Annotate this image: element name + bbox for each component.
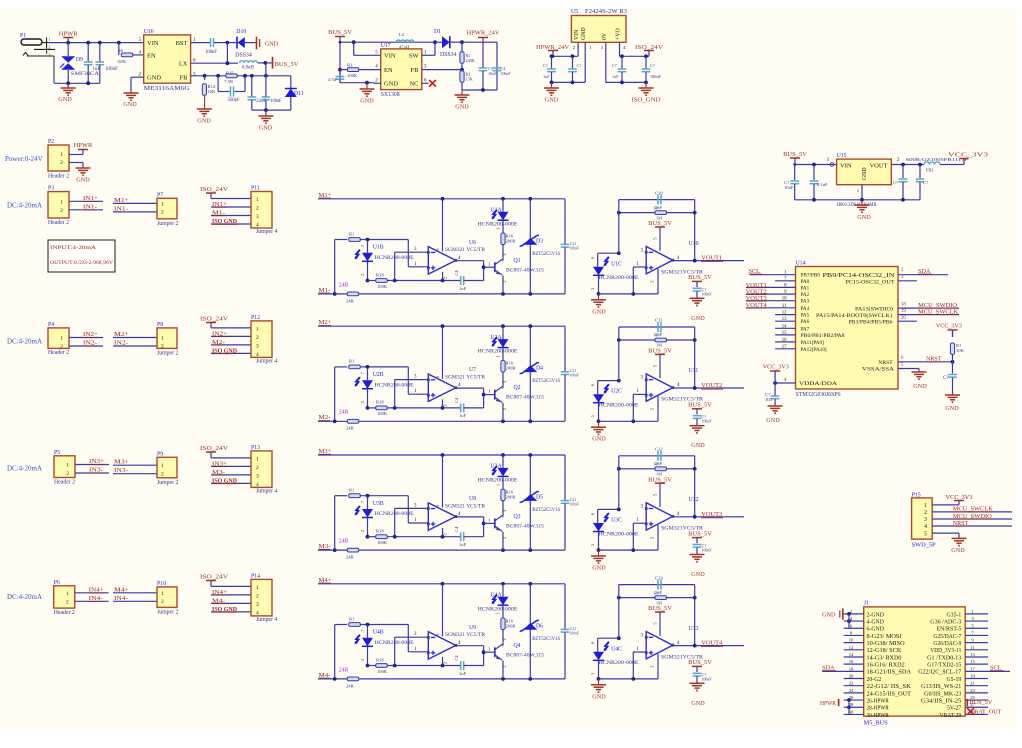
svg-text:VSSA/SSA: VSSA/SSA: [862, 367, 894, 373]
svg-text:BC807-40W,115: BC807-40W,115: [506, 652, 544, 658]
svg-text:1: 1: [256, 585, 259, 591]
svg-text:2: 2: [60, 208, 63, 214]
svg-text:100nF: 100nF: [105, 66, 118, 72]
svg-text:D3: D3: [536, 238, 543, 244]
svg-text:10K: 10K: [956, 348, 965, 353]
svg-text:2: 2: [256, 335, 259, 341]
svg-text:3: 3: [256, 473, 259, 479]
svg-text:GND: GND: [265, 41, 279, 48]
svg-text:Header 2: Header 2: [48, 220, 69, 226]
svg-text:24R: 24R: [339, 539, 349, 545]
svg-text:C?: C?: [577, 63, 582, 68]
svg-text:U3B: U3B: [373, 501, 384, 507]
svg-text:R?: R?: [654, 205, 659, 210]
svg-text:16: 16: [849, 659, 854, 664]
svg-text:11: 11: [970, 645, 975, 650]
svg-text:BUS_5V: BUS_5V: [688, 659, 712, 666]
svg-text:GND: GND: [592, 308, 606, 315]
svg-text:IN3-: IN3-: [89, 468, 103, 474]
svg-text:IN2+: IN2+: [83, 332, 98, 338]
svg-text:15K: 15K: [466, 77, 473, 82]
svg-text:C?: C?: [543, 63, 548, 68]
svg-text:C?: C?: [943, 376, 949, 381]
svg-text:PB3/PB4/PB5/PB6: PB3/PB4/PB5/PB6: [849, 320, 893, 326]
svg-text:IN4-: IN4-: [114, 596, 128, 602]
svg-text:20: 20: [849, 674, 854, 679]
svg-text:INPUT:4-20mA: INPUT:4-20mA: [50, 245, 96, 251]
svg-text:GND: GND: [691, 700, 705, 707]
svg-text:1: 1: [496, 613, 501, 615]
svg-text:VBAT-29: VBAT-29: [940, 713, 962, 719]
svg-text:U7: U7: [469, 367, 476, 373]
svg-text:100nF: 100nF: [570, 374, 579, 378]
svg-text:SW: SW: [409, 53, 420, 60]
svg-text:BUS_5V: BUS_5V: [688, 530, 712, 537]
svg-text:ISO_GND: ISO_GND: [632, 97, 662, 104]
svg-text:7: 7: [360, 630, 365, 632]
svg-text:Jumper 2: Jumper 2: [157, 350, 179, 356]
svg-text:100nF: 100nF: [270, 99, 281, 104]
svg-text:U9: U9: [469, 625, 476, 631]
svg-text:2: 2: [256, 206, 259, 212]
svg-text:U10: U10: [689, 241, 699, 247]
svg-text:C21: C21: [570, 369, 576, 373]
svg-text:U2A: U2A: [490, 335, 502, 341]
svg-text:1: 1: [256, 456, 259, 462]
svg-text:GND: GND: [123, 101, 137, 108]
svg-text:R18: R18: [376, 400, 384, 405]
svg-text:PC15-OSC32_OUT: PC15-OSC32_OUT: [846, 280, 896, 286]
svg-text:2: 2: [256, 465, 259, 471]
svg-text:2: 2: [66, 599, 69, 605]
svg-text:PA4: PA4: [801, 306, 810, 312]
svg-text:U11: U11: [689, 368, 699, 374]
svg-text:1: 1: [66, 463, 69, 469]
svg-text:1uF: 1uF: [459, 286, 467, 291]
svg-text:17: 17: [970, 666, 975, 671]
svg-text:U17: U17: [381, 43, 391, 49]
svg-text:Header 2: Header 2: [54, 610, 75, 616]
svg-text:U6: U6: [469, 240, 476, 246]
svg-text:D5: D5: [536, 495, 543, 501]
svg-text:1: 1: [496, 355, 501, 357]
svg-text:IN2-: IN2-: [114, 341, 128, 347]
svg-text:C4: C4: [454, 270, 459, 276]
svg-text:24R: 24R: [339, 667, 349, 673]
svg-text:24: 24: [849, 688, 854, 693]
svg-text:BUS_5V: BUS_5V: [648, 476, 672, 483]
svg-text:19: 19: [970, 674, 975, 679]
svg-text:23: 23: [970, 688, 975, 693]
svg-text:C4: C4: [454, 397, 459, 403]
svg-text:100K: 100K: [117, 59, 126, 64]
svg-text:C?: C?: [923, 180, 928, 185]
svg-text:VDDA/DDA: VDDA/DDA: [799, 381, 837, 387]
svg-text:100nF: 100nF: [501, 71, 512, 76]
svg-text:5: 5: [590, 673, 595, 675]
svg-text:OUTPUT:0.593-2.968,96V: OUTPUT:0.593-2.968,96V: [50, 260, 113, 266]
svg-text:C11: C11: [655, 318, 663, 323]
svg-text:D10: D10: [236, 29, 246, 35]
svg-text:C?: C?: [893, 180, 898, 185]
svg-text:16-G16/ RXD2: 16-G16/ RXD2: [867, 663, 905, 669]
svg-text:24R: 24R: [339, 282, 349, 288]
svg-text:U15: U15: [837, 153, 847, 159]
svg-text:VOUT2: VOUT2: [701, 382, 722, 389]
svg-text:IN2-: IN2-: [83, 341, 97, 347]
svg-text:24R: 24R: [346, 555, 355, 560]
svg-text:DC:4-20mA: DC:4-20mA: [7, 465, 42, 473]
svg-text:24R: 24R: [346, 426, 355, 431]
svg-text:ISO_24V: ISO_24V: [200, 445, 228, 452]
svg-text:240K: 240K: [466, 58, 475, 63]
svg-text:GND: GND: [766, 417, 780, 424]
svg-text:18-G21/IIS_SDA: 18-G21/IIS_SDA: [867, 670, 912, 676]
svg-text:13: 13: [970, 652, 975, 657]
svg-text:U4B: U4B: [373, 630, 384, 636]
svg-text:VIN: VIN: [840, 163, 852, 170]
svg-text:U14: U14: [796, 261, 806, 267]
svg-text:Jumper 2: Jumper 2: [157, 480, 179, 486]
svg-text:Header 2: Header 2: [54, 479, 75, 485]
svg-text:U12: U12: [689, 497, 699, 503]
svg-text:2: 2: [60, 344, 63, 350]
svg-text:1: 1: [161, 591, 164, 597]
svg-text:18: 18: [849, 666, 854, 671]
svg-text:GND: GND: [384, 81, 398, 88]
svg-text:1: 1: [66, 591, 69, 597]
svg-text:C13: C13: [655, 575, 663, 580]
svg-text:30-HPWR: 30-HPWR: [867, 713, 889, 719]
svg-text:100nF: 100nF: [570, 503, 579, 507]
svg-text:G17/TXD2-15: G17/TXD2-15: [927, 663, 961, 669]
svg-text:PA3: PA3: [801, 299, 810, 305]
svg-text:P12: P12: [251, 315, 260, 321]
svg-text:100nF: 100nF: [702, 676, 713, 681]
svg-text:10uF: 10uF: [784, 185, 794, 190]
svg-text:100K: 100K: [377, 669, 388, 674]
svg-text:3: 3: [49, 54, 51, 58]
svg-text:24R: 24R: [346, 683, 355, 688]
svg-text:F2424S-2W R3: F2424S-2W R3: [585, 9, 627, 15]
svg-text:0V: 0V: [602, 32, 608, 40]
svg-text:GND: GND: [862, 167, 868, 180]
svg-text:ISO_24V: ISO_24V: [200, 186, 228, 193]
svg-text:1: 1: [924, 503, 927, 509]
svg-text:100nF: 100nF: [702, 419, 713, 424]
svg-text:GND: GND: [58, 96, 72, 103]
svg-text:SGM321 YC5/TR: SGM321 YC5/TR: [445, 632, 486, 638]
svg-text:M5_BUS: M5_BUS: [864, 720, 889, 727]
svg-text:R18: R18: [376, 272, 384, 277]
svg-text:2: 2: [360, 530, 365, 532]
svg-text:HPWR_24V: HPWR_24V: [467, 30, 500, 37]
svg-text:Jumper 4: Jumper 4: [256, 488, 278, 494]
svg-text:6: 6: [590, 384, 595, 386]
svg-text:BAT_OUT: BAT_OUT: [974, 708, 1001, 715]
svg-text:Header 2: Header 2: [48, 350, 69, 356]
svg-text:2: 2: [360, 274, 365, 276]
svg-text:P8: P8: [157, 322, 163, 328]
svg-text:PB0/PB1/PB2/PA8: PB0/PB1/PB2/PA8: [801, 333, 845, 339]
svg-text:2: 2: [161, 344, 164, 350]
svg-text:U1B: U1B: [373, 245, 384, 251]
svg-text:Power:0-24V: Power:0-24V: [5, 155, 43, 163]
svg-text:G25/DAC-7: G25/DAC-7: [933, 634, 961, 640]
svg-text:C?: C?: [650, 63, 655, 68]
svg-text:100K: 100K: [347, 73, 358, 78]
svg-text:G5-19: G5-19: [946, 677, 961, 683]
svg-text:VIN: VIN: [574, 29, 580, 40]
svg-text:VCC_3V3: VCC_3V3: [948, 152, 988, 159]
svg-text:100nF: 100nF: [650, 74, 662, 79]
svg-text:ISO_24V: ISO_24V: [200, 574, 228, 581]
svg-text:7: 7: [360, 245, 365, 247]
svg-text:STM32G030J6SP6: STM32G030J6SP6: [796, 392, 841, 398]
svg-text:GND: GND: [857, 214, 871, 221]
svg-text:HCNR200-000E: HCNR200-000E: [478, 349, 518, 355]
svg-text:LX: LX: [179, 61, 188, 68]
svg-text:560pF: 560pF: [228, 98, 240, 103]
svg-text:R18: R18: [376, 529, 384, 534]
svg-text:GND: GND: [592, 693, 606, 700]
svg-text:C21: C21: [570, 627, 576, 631]
svg-text:10K: 10K: [208, 89, 217, 94]
svg-text:1: 1: [496, 228, 501, 230]
svg-text:2: 2: [60, 160, 63, 166]
svg-text:200R: 200R: [506, 623, 517, 628]
svg-text:200R: 200R: [506, 366, 517, 371]
svg-text:M2+: M2+: [114, 332, 129, 338]
svg-text:P10: P10: [157, 581, 166, 587]
svg-text:1: 1: [60, 199, 63, 205]
svg-text:12: 12: [849, 645, 854, 650]
svg-text:IN3-: IN3-: [114, 468, 128, 474]
svg-text:4.7uF: 4.7uF: [328, 77, 338, 82]
svg-text:HPWR: HPWR: [820, 700, 837, 707]
svg-text:U13: U13: [689, 626, 699, 632]
svg-text:100K: 100K: [377, 411, 388, 416]
svg-text:SGM321 YC5/TR: SGM321 YC5/TR: [445, 375, 486, 381]
svg-text:HCNR200-000E: HCNR200-000E: [599, 275, 639, 281]
svg-text:U3A: U3A: [490, 464, 502, 470]
svg-text:VOUT1: VOUT1: [701, 255, 722, 262]
svg-text:6: 6: [590, 642, 595, 644]
svg-text:IN1-: IN1-: [83, 204, 97, 210]
svg-text:R18: R18: [376, 657, 384, 662]
svg-text:M3+: M3+: [114, 460, 129, 466]
svg-text:3: 3: [256, 602, 259, 608]
svg-text:Jumper 2: Jumper 2: [157, 221, 179, 227]
svg-text:PA5: PA5: [801, 313, 810, 319]
svg-text:PA6: PA6: [801, 319, 810, 325]
svg-text:HPWR: HPWR: [74, 142, 93, 149]
svg-text:FB1: FB1: [926, 168, 935, 173]
svg-text:104: 104: [765, 397, 773, 402]
svg-text:1: 1: [60, 152, 63, 158]
svg-text:5: 5: [590, 415, 595, 417]
svg-text:24R: 24R: [346, 298, 355, 303]
svg-text:100K: 100K: [377, 284, 388, 289]
svg-text:VOUT3: VOUT3: [701, 511, 722, 518]
svg-text:R1: R1: [349, 231, 355, 236]
svg-text:20: 20: [901, 316, 906, 321]
svg-text:4: 4: [256, 223, 259, 229]
svg-text:VOUT4: VOUT4: [701, 640, 723, 647]
svg-text:6: 6: [590, 257, 595, 259]
svg-text:GND: GND: [581, 27, 587, 40]
svg-text:2: 2: [360, 659, 365, 661]
svg-text:14: 14: [849, 652, 854, 657]
svg-text:100nF: 100nF: [702, 291, 713, 296]
svg-text:P6: P6: [54, 580, 60, 586]
svg-text:P15: P15: [912, 493, 921, 499]
svg-text:BUS_5V: BUS_5V: [648, 220, 672, 227]
svg-text:HCNR200-000E: HCNR200-000E: [599, 531, 639, 537]
svg-text:100nF: 100nF: [702, 548, 713, 553]
svg-text:VIN: VIN: [147, 40, 159, 47]
svg-text:Header 2: Header 2: [48, 174, 69, 180]
svg-text:1: 1: [161, 336, 164, 342]
svg-text:PB9/PC14-OSC32_IN: PB9/PC14-OSC32_IN: [823, 273, 896, 279]
svg-text:BZT52C5V1S: BZT52C5V1S: [532, 378, 560, 384]
svg-text:GND: GND: [592, 436, 606, 443]
svg-text:HCNR200-000E: HCNR200-000E: [478, 606, 518, 612]
svg-text:P14: P14: [251, 573, 260, 579]
svg-text:SGM321 YC5/TR: SGM321 YC5/TR: [445, 503, 486, 509]
svg-text:7: 7: [360, 372, 365, 374]
svg-text:G26/DAC-9: G26/DAC-9: [933, 641, 961, 647]
svg-text:GND: GND: [951, 547, 965, 554]
svg-text:3: 3: [256, 214, 259, 220]
svg-text:G22/I2C_SCL-17: G22/I2C_SCL-17: [918, 670, 961, 676]
svg-text:BUS_5V: BUS_5V: [783, 151, 807, 158]
svg-text:G0/IIS_MK-23: G0/IIS_MK-23: [924, 691, 961, 697]
svg-text:BUS_5V: BUS_5V: [275, 61, 299, 68]
svg-text:G1 /TXD0-13: G1 /TXD0-13: [927, 655, 961, 661]
svg-text:P7: P7: [157, 192, 163, 198]
svg-text:BZT52C5V1S: BZT52C5V1S: [532, 251, 560, 257]
svg-text:12-G18/ SCK: 12-G18/ SCK: [867, 648, 903, 654]
svg-text:M1+: M1+: [114, 198, 129, 204]
svg-text:P13: P13: [251, 445, 260, 451]
svg-text:BC807-40W,115: BC807-40W,115: [506, 267, 544, 273]
svg-text:C?: C?: [612, 63, 617, 68]
svg-text:4: 4: [924, 524, 927, 530]
svg-text:C10: C10: [655, 190, 663, 195]
svg-text:L2: L2: [399, 32, 405, 37]
svg-text:PA1: PA1: [801, 285, 810, 291]
svg-text:G35-1: G35-1: [946, 612, 961, 618]
svg-text:200R: 200R: [506, 495, 517, 500]
svg-text:ISO_24V: ISO_24V: [200, 316, 228, 323]
svg-text:D4: D4: [536, 366, 543, 372]
svg-text:Jumper 4: Jumper 4: [256, 229, 278, 235]
svg-text:GND: GND: [197, 118, 211, 125]
svg-text:EN: EN: [384, 67, 393, 74]
svg-text:PA2: PA2: [801, 292, 810, 298]
svg-text:SWD_5P: SWD_5P: [912, 543, 937, 549]
svg-text:2: 2: [360, 401, 365, 403]
svg-text:NRST: NRST: [878, 360, 893, 366]
svg-text:BUS_5V: BUS_5V: [648, 605, 672, 612]
svg-text:18: 18: [901, 303, 906, 308]
svg-text:Jumper 4: Jumper 4: [256, 358, 278, 364]
svg-text:HPWR: HPWR: [59, 31, 78, 38]
svg-text:HCNR200-000E: HCNR200-000E: [478, 221, 518, 227]
svg-text:R15: R15: [226, 71, 234, 76]
svg-text:PA13(SWDIO): PA13(SWDIO): [855, 306, 893, 313]
svg-text:R1: R1: [349, 359, 355, 364]
svg-text:ME3116AM6G: ME3116AM6G: [144, 86, 190, 92]
svg-text:GND: GND: [691, 442, 705, 449]
svg-text:U2C: U2C: [611, 389, 622, 395]
svg-text:14-G3/ RXD0: 14-G3/ RXD0: [867, 655, 902, 661]
svg-text:200R: 200R: [506, 238, 517, 243]
svg-text:PA15/PA14-BOOT0(SWCLK): PA15/PA14-BOOT0(SWCLK): [816, 312, 892, 319]
svg-text:BUS_5V: BUS_5V: [970, 699, 993, 706]
svg-text:22: 22: [849, 681, 854, 686]
svg-text:P4: P4: [48, 322, 54, 328]
svg-text:J1: J1: [864, 600, 869, 606]
svg-text:10: 10: [849, 638, 854, 643]
svg-text:2: 2: [49, 46, 51, 50]
svg-text:VCC_3V3: VCC_3V3: [936, 323, 962, 330]
svg-text:U4C: U4C: [611, 646, 622, 652]
svg-text:GND: GND: [691, 315, 705, 322]
svg-text:6: 6: [590, 513, 595, 515]
svg-text:M4+: M4+: [114, 587, 129, 593]
svg-text:PA11[PA9]: PA11[PA9]: [801, 340, 825, 346]
svg-text:BUS_5V: BUS_5V: [328, 29, 352, 36]
svg-text:R3: R3: [347, 63, 353, 68]
svg-text:GND: GND: [913, 383, 927, 390]
svg-text:22-G12/ IIS_SK: 22-G12/ IIS_SK: [867, 684, 912, 690]
svg-text:BC807-40W,115: BC807-40W,115: [506, 395, 544, 401]
svg-text:1: 1: [496, 484, 501, 486]
svg-text:DSS34: DSS34: [235, 53, 252, 59]
svg-text:VDD_3V3-11: VDD_3V3-11: [930, 648, 961, 654]
svg-text:1: 1: [256, 326, 259, 332]
svg-text:P9: P9: [157, 451, 163, 457]
svg-text:3: 3: [924, 517, 927, 523]
svg-text:3: 3: [256, 343, 259, 349]
svg-text:U4A: U4A: [490, 593, 502, 599]
svg-text:10-G38/ MISO: 10-G38/ MISO: [867, 641, 905, 647]
svg-text:D9: D9: [76, 57, 83, 63]
svg-text:FB: FB: [180, 75, 189, 82]
svg-text:IN1+: IN1+: [83, 196, 98, 202]
svg-text:GND: GND: [945, 405, 959, 412]
svg-text:GND: GND: [455, 104, 469, 111]
svg-text:DSS34: DSS34: [440, 52, 457, 58]
svg-text:1uF: 1uF: [459, 413, 467, 418]
svg-text:2: 2: [66, 471, 69, 477]
svg-text:28-HPWR: 28-HPWR: [867, 706, 889, 712]
svg-text:VCC_3V3: VCC_3V3: [763, 363, 789, 370]
svg-text:1: 1: [49, 38, 51, 42]
svg-text:G13/IIS_WS-21: G13/IIS_WS-21: [921, 684, 961, 690]
svg-text:0.1uF: 0.1uF: [817, 182, 828, 187]
svg-text:2-GND: 2-GND: [867, 612, 884, 618]
svg-text:100nF: 100nF: [205, 50, 217, 55]
svg-text:C4: C4: [454, 526, 459, 532]
svg-text:D6: D6: [536, 623, 543, 629]
svg-text:100nF: 100nF: [570, 631, 579, 635]
svg-text:R1: R1: [349, 488, 355, 493]
svg-text:21: 21: [970, 681, 975, 686]
svg-text:1uF: 1uF: [612, 74, 619, 79]
